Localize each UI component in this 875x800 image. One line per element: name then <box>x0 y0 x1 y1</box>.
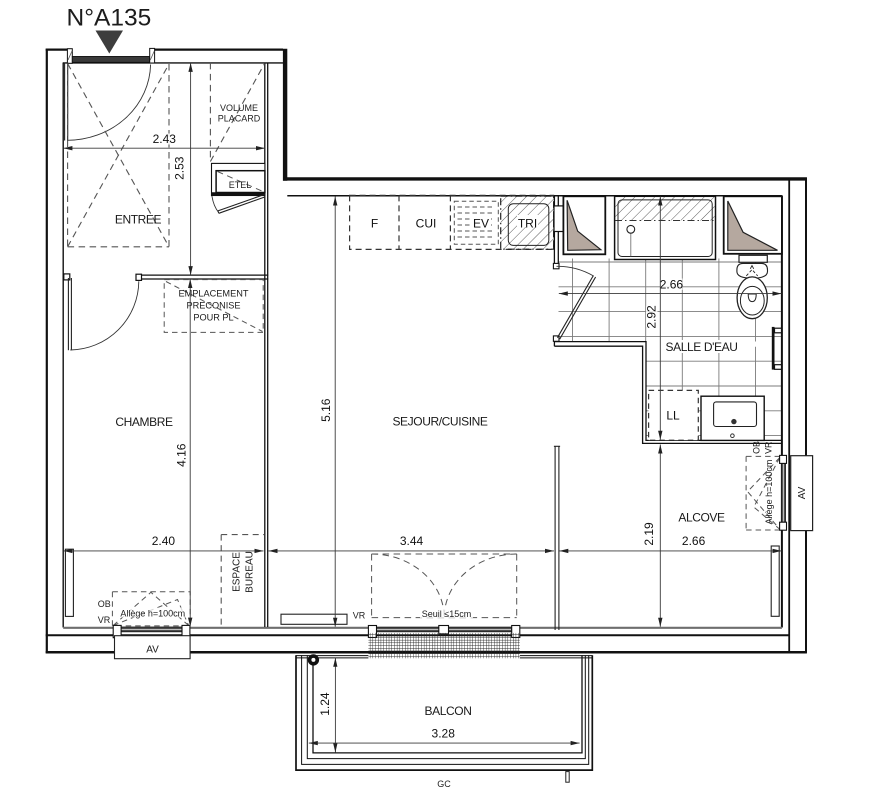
svg-text:VR: VR <box>763 442 773 454</box>
svg-text:EV: EV <box>473 216 489 230</box>
svg-text:2.53: 2.53 <box>173 156 187 180</box>
svg-text:VR: VR <box>353 610 366 620</box>
svg-text:3.44: 3.44 <box>400 534 424 548</box>
svg-text:2.92: 2.92 <box>645 305 659 329</box>
svg-text:2.19: 2.19 <box>642 522 656 546</box>
svg-text:PRECONISE: PRECONISE <box>186 301 240 311</box>
svg-text:BALCON: BALCON <box>425 704 472 718</box>
svg-text:F: F <box>371 216 378 230</box>
svg-text:ALCOVE: ALCOVE <box>678 511 725 525</box>
svg-text:BUREAU: BUREAU <box>245 551 256 593</box>
svg-text:EMPLACEMENT: EMPLACEMENT <box>179 289 249 299</box>
svg-text:N°A135: N°A135 <box>67 4 152 31</box>
svg-text:Allège h=100cm: Allège h=100cm <box>120 609 185 619</box>
svg-text:ESPACE: ESPACE <box>232 552 243 592</box>
svg-text:CUI: CUI <box>416 216 437 230</box>
svg-text:VOLUME: VOLUME <box>220 103 258 113</box>
svg-text:2.40: 2.40 <box>152 534 176 548</box>
svg-text:AV: AV <box>146 644 159 655</box>
svg-text:2.66: 2.66 <box>660 278 684 292</box>
svg-text:Allège h=100cm: Allège h=100cm <box>764 460 774 525</box>
svg-text:LL: LL <box>666 409 680 423</box>
svg-text:2.66: 2.66 <box>682 534 706 548</box>
svg-text:PLACARD: PLACARD <box>218 114 261 124</box>
svg-text:1.24: 1.24 <box>318 692 332 716</box>
svg-text:CHAMBRE: CHAMBRE <box>115 415 173 429</box>
svg-text:2.43: 2.43 <box>153 132 177 146</box>
svg-text:ENTREE: ENTREE <box>115 213 162 227</box>
svg-text:OB: OB <box>98 599 111 609</box>
svg-text:Seuil ≤15cm: Seuil ≤15cm <box>422 609 471 619</box>
svg-text:4.16: 4.16 <box>175 443 189 467</box>
svg-text:OB: OB <box>752 441 762 454</box>
svg-text:VR: VR <box>98 615 111 625</box>
svg-text:3.28: 3.28 <box>432 726 456 740</box>
svg-text:AV: AV <box>797 486 808 499</box>
svg-text:ETEL: ETEL <box>229 180 252 190</box>
svg-text:GC: GC <box>437 779 451 789</box>
svg-text:5.16: 5.16 <box>319 398 333 422</box>
svg-text:SALLE D'EAU: SALLE D'EAU <box>666 340 738 354</box>
svg-text:POUR PL: POUR PL <box>193 313 233 323</box>
svg-text:SEJOUR/CUISINE: SEJOUR/CUISINE <box>392 414 487 428</box>
svg-text:TRI: TRI <box>518 216 537 230</box>
